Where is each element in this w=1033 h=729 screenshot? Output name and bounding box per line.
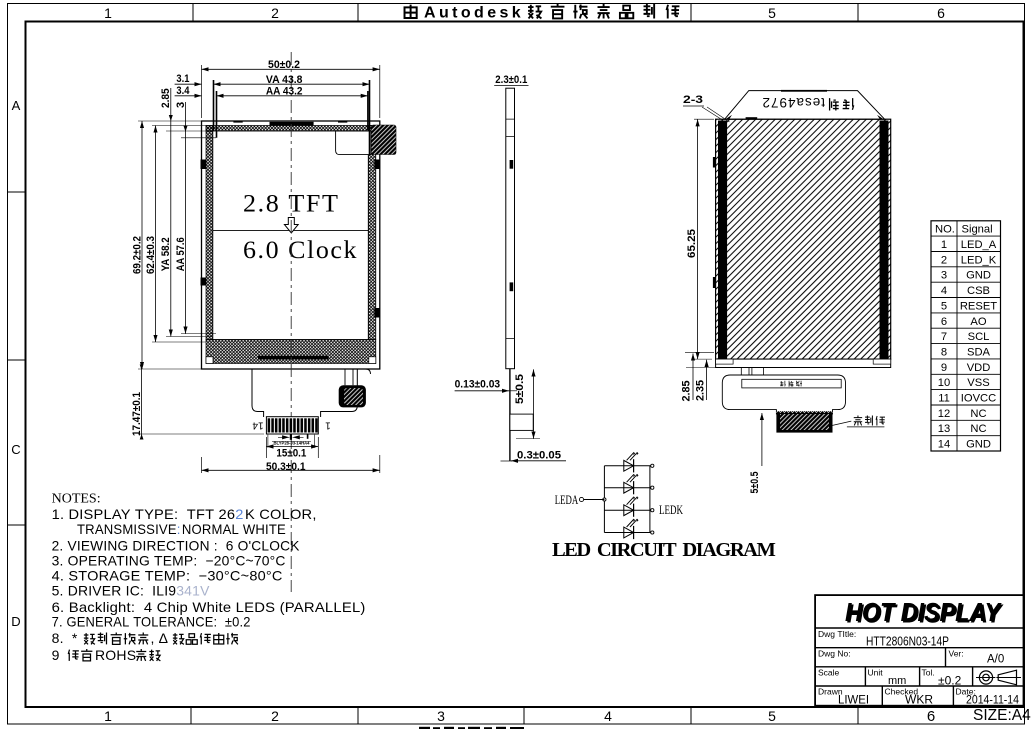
svg-text:50.3±0.1: 50.3±0.1 (266, 461, 306, 473)
svg-text:A: A (12, 98, 21, 113)
svg-text:1. DISPLAY TYPE: TFT 262 K CO: 1. DISPLAY TYPE: TFT 262 K COLOR, (52, 506, 317, 522)
svg-text:NC: NC (970, 423, 986, 435)
svg-text:NO.: NO. (935, 224, 955, 236)
svg-text:14: 14 (252, 420, 264, 431)
svg-text:Dwg No:: Dwg No: (818, 649, 851, 659)
svg-text:5±0.5: 5±0.5 (514, 374, 526, 404)
svg-text:SCL: SCL (968, 331, 990, 343)
svg-text:SDA: SDA (967, 346, 991, 358)
svg-text:Tol.: Tol. (922, 668, 935, 678)
svg-text:GND: GND (966, 439, 991, 451)
svg-text:Signal: Signal (962, 224, 993, 236)
svg-text:Dwg TItle:: Dwg TItle: (818, 629, 856, 639)
svg-text:7: 7 (941, 331, 947, 343)
svg-text:2.35: 2.35 (695, 380, 707, 401)
svg-text:LED_A: LED_A (961, 239, 997, 251)
svg-text:0.13±0.03: 0.13±0.03 (455, 379, 501, 391)
svg-text:2: 2 (271, 5, 279, 21)
svg-text:LIWEI: LIWEI (838, 693, 869, 707)
svg-text:0.3±0.05: 0.3±0.05 (517, 450, 561, 462)
svg-text:3.1: 3.1 (176, 73, 189, 85)
svg-text:2.85: 2.85 (160, 88, 172, 108)
svg-text:3.4: 3.4 (176, 85, 190, 97)
svg-text:LED_K: LED_K (961, 254, 997, 266)
svg-text:LEDK: LEDK (659, 503, 683, 517)
svg-text:±0.2: ±0.2 (938, 674, 962, 688)
svg-text:2014-11-14: 2014-11-14 (966, 693, 1019, 707)
svg-text:2-3: 2-3 (683, 94, 703, 106)
svg-text:HOT DISPLAY: HOT DISPLAY (845, 599, 1002, 627)
svg-text:A/0: A/0 (987, 654, 1004, 666)
svg-text:AA 57.6: AA 57.6 (175, 237, 187, 271)
svg-text:5: 5 (941, 300, 947, 312)
svg-text:8. *: 8. * (52, 630, 78, 646)
svg-text:NC: NC (970, 408, 986, 420)
svg-text:Scale: Scale (818, 668, 840, 678)
svg-text:IOVCC: IOVCC (961, 393, 996, 405)
svg-text:5. DRIVER IC: ILI9341V: 5. DRIVER IC: ILI9341V (52, 582, 210, 598)
svg-text:6.0 Clock: 6.0 Clock (243, 237, 358, 264)
svg-text:1: 1 (325, 420, 331, 431)
svg-text:4: 4 (941, 285, 947, 297)
svg-text:, Δ: , Δ (151, 630, 169, 646)
svg-text:2: 2 (941, 254, 947, 266)
svg-text:2.85: 2.85 (681, 381, 693, 402)
svg-text:12: 12 (938, 408, 950, 420)
svg-text:3: 3 (437, 708, 445, 724)
svg-text:TRANSMISSIVE: NORMAL WHITE: TRANSMISSIVE: NORMAL WHITE (77, 521, 286, 537)
svg-text:ROHS: ROHS (95, 647, 136, 663)
svg-text:VSS: VSS (967, 377, 989, 389)
svg-text:50±0.2: 50±0.2 (268, 59, 300, 71)
svg-text:6. Backlight: 4 Chip White LE: 6. Backlight: 4 Chip White LEDS (PARALLE… (52, 599, 366, 615)
svg-text:7. GENERAL TOLERANCE: ±0.2: 7. GENERAL TOLERANCE: ±0.2 (52, 614, 251, 630)
svg-text:1: 1 (104, 5, 112, 21)
svg-text:10: 10 (938, 377, 950, 389)
svg-text:VA 43.8: VA 43.8 (266, 74, 303, 86)
svg-text:69.2±0.2: 69.2±0.2 (131, 236, 143, 274)
svg-text:11: 11 (938, 393, 950, 405)
svg-text:SIZE:A4: SIZE:A4 (973, 707, 1031, 724)
svg-text:C: C (11, 442, 20, 457)
svg-text:8: 8 (941, 346, 947, 358)
svg-text:9: 9 (941, 362, 947, 374)
svg-text:9: 9 (52, 647, 60, 663)
svg-text:3: 3 (941, 270, 947, 282)
svg-text:GND: GND (966, 270, 991, 282)
svg-text:YA 58.2: YA 58.2 (160, 237, 172, 271)
svg-text:VDD: VDD (967, 362, 991, 374)
svg-text:1: 1 (941, 239, 947, 251)
svg-text:CSB: CSB (967, 285, 990, 297)
svg-text:5: 5 (768, 708, 776, 724)
svg-text:5±0.5: 5±0.5 (749, 472, 761, 494)
svg-text:2. VIEWING DIRECTION : 6 O'CL: 2. VIEWING DIRECTION : 6 O'CLOCK (52, 538, 300, 554)
svg-text:LEDA: LEDA (555, 493, 579, 507)
svg-text:2.3±0.1: 2.3±0.1 (495, 74, 527, 86)
svg-text:4. STORAGE TEMP: −30°C~80°C: 4. STORAGE TEMP: −30°C~80°C (52, 567, 283, 583)
svg-text:AO: AO (970, 316, 986, 328)
svg-text:6: 6 (941, 316, 947, 328)
svg-text:4: 4 (604, 708, 612, 724)
svg-text:Ver:: Ver: (949, 649, 964, 659)
svg-text:6: 6 (927, 708, 935, 725)
svg-text:D: D (11, 614, 20, 629)
svg-text:tesa4972: tesa4972 (761, 95, 825, 110)
svg-text:LED CIRCUIT DIAGRAM: LED CIRCUIT DIAGRAM (552, 539, 776, 561)
svg-text:5: 5 (768, 5, 776, 21)
svg-text:3. OPERATING TEMP: −20°C~70°C: 3. OPERATING TEMP: −20°C~70°C (52, 553, 286, 569)
svg-text:17.47±0.1: 17.47±0.1 (131, 392, 143, 436)
svg-text:HTT2806N03-14P: HTT2806N03-14P (866, 634, 949, 649)
svg-text:WKR: WKR (905, 693, 933, 707)
svg-text:AA 43.2: AA 43.2 (266, 85, 303, 97)
svg-text:RESET: RESET (960, 300, 997, 312)
svg-text:13: 13 (938, 423, 950, 435)
svg-text:15±0.1: 15±0.1 (276, 448, 306, 460)
svg-text:NOTES:: NOTES: (52, 492, 101, 507)
svg-text:65.25: 65.25 (686, 229, 698, 258)
svg-text:6: 6 (937, 5, 945, 21)
svg-text:Unit: Unit (868, 668, 884, 678)
svg-text:1: 1 (104, 708, 112, 724)
svg-text:62.4±0.3: 62.4±0.3 (145, 236, 157, 274)
svg-text:2: 2 (271, 708, 279, 724)
svg-text:14: 14 (938, 439, 950, 451)
svg-text:mm: mm (888, 675, 906, 687)
